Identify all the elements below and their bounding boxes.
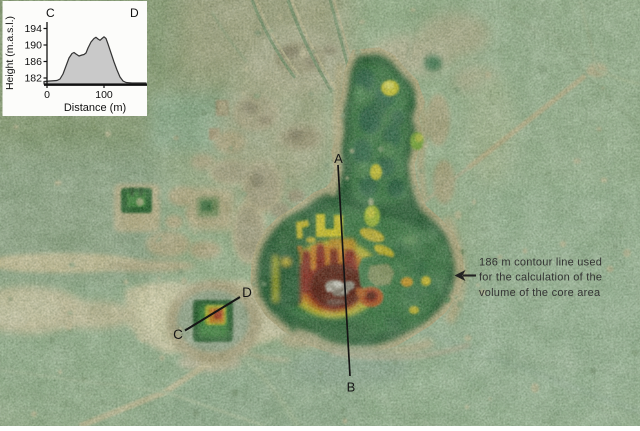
svg-text:186: 186 xyxy=(24,56,42,68)
svg-text:194: 194 xyxy=(24,23,42,35)
svg-text:for the calculation of the: for the calculation of the xyxy=(479,272,602,284)
svg-text:B: B xyxy=(347,380,356,395)
svg-text:D: D xyxy=(130,6,139,20)
svg-text:0: 0 xyxy=(44,89,50,101)
svg-text:186 m contour line used: 186 m contour line used xyxy=(479,256,602,268)
svg-text:Height (m.a.s.l.): Height (m.a.s.l.) xyxy=(4,16,16,90)
svg-text:100: 100 xyxy=(95,89,113,101)
svg-text:190: 190 xyxy=(24,40,42,52)
svg-text:A: A xyxy=(334,151,343,166)
svg-text:volume of the core area: volume of the core area xyxy=(479,287,601,299)
svg-text:C: C xyxy=(46,6,55,20)
svg-text:D: D xyxy=(242,285,252,300)
svg-text:Distance (m): Distance (m) xyxy=(64,102,126,114)
svg-text:C: C xyxy=(173,327,183,342)
svg-text:182: 182 xyxy=(24,73,42,85)
